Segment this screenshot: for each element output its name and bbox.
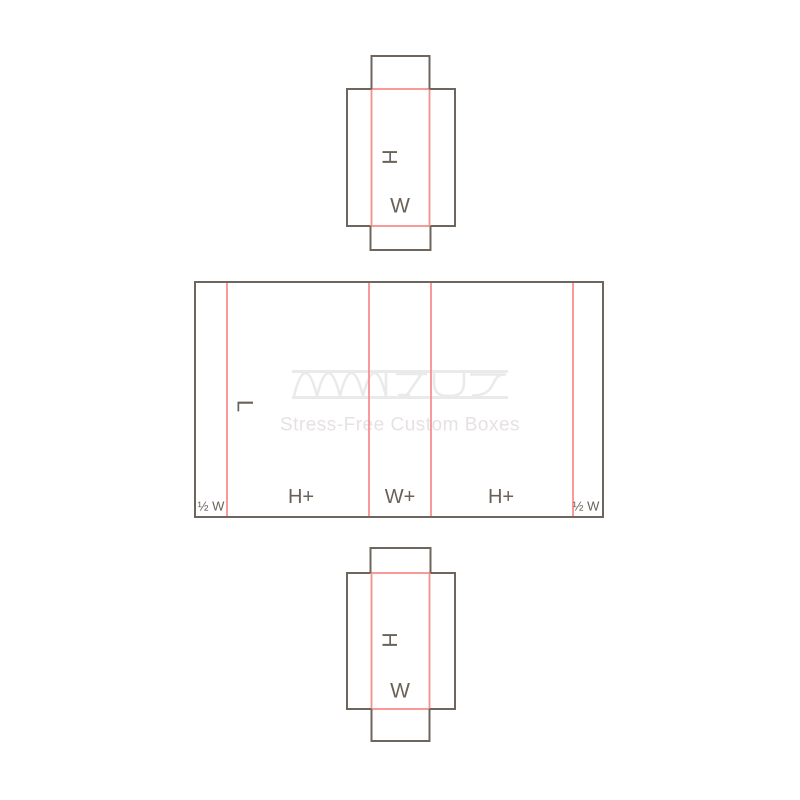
cut-line <box>430 89 456 226</box>
main-panel-length-label: L <box>233 400 258 412</box>
top-flap-width-label: W <box>390 195 410 218</box>
main-panel-half-width-label-left: ½ W <box>198 499 225 514</box>
cut-line <box>372 709 430 741</box>
bottom-flap-width-label: W <box>390 680 410 703</box>
cut-line <box>371 226 431 250</box>
bottom-flap-dieline: H W <box>347 548 455 741</box>
main-panel-half-width-label-right: ½ W <box>573 499 600 514</box>
cut-line <box>371 548 431 573</box>
brand-logo-icon <box>292 372 508 398</box>
main-panel-height-plus-label-left: H+ <box>288 486 314 508</box>
main-panel-height-plus-label-right: H+ <box>488 486 514 508</box>
cut-line <box>347 573 372 709</box>
top-flap-height-label: H <box>378 149 401 164</box>
dieline-drawing: Stress-Free Custom Boxes H W L ½ W H+ W+… <box>0 0 800 800</box>
main-panel-width-plus-label: W+ <box>385 486 416 508</box>
watermark-tagline: Stress-Free Custom Boxes <box>280 415 520 436</box>
dieline-canvas: Stress-Free Custom Boxes H W L ½ W H+ W+… <box>0 0 800 800</box>
cut-line <box>372 56 430 89</box>
main-panel-dieline: L ½ W H+ W+ H+ ½ W <box>195 282 603 517</box>
top-flap-dieline: H W <box>347 56 455 250</box>
cut-line <box>347 89 372 226</box>
cut-line <box>430 573 456 709</box>
bottom-flap-height-label: H <box>378 632 401 647</box>
